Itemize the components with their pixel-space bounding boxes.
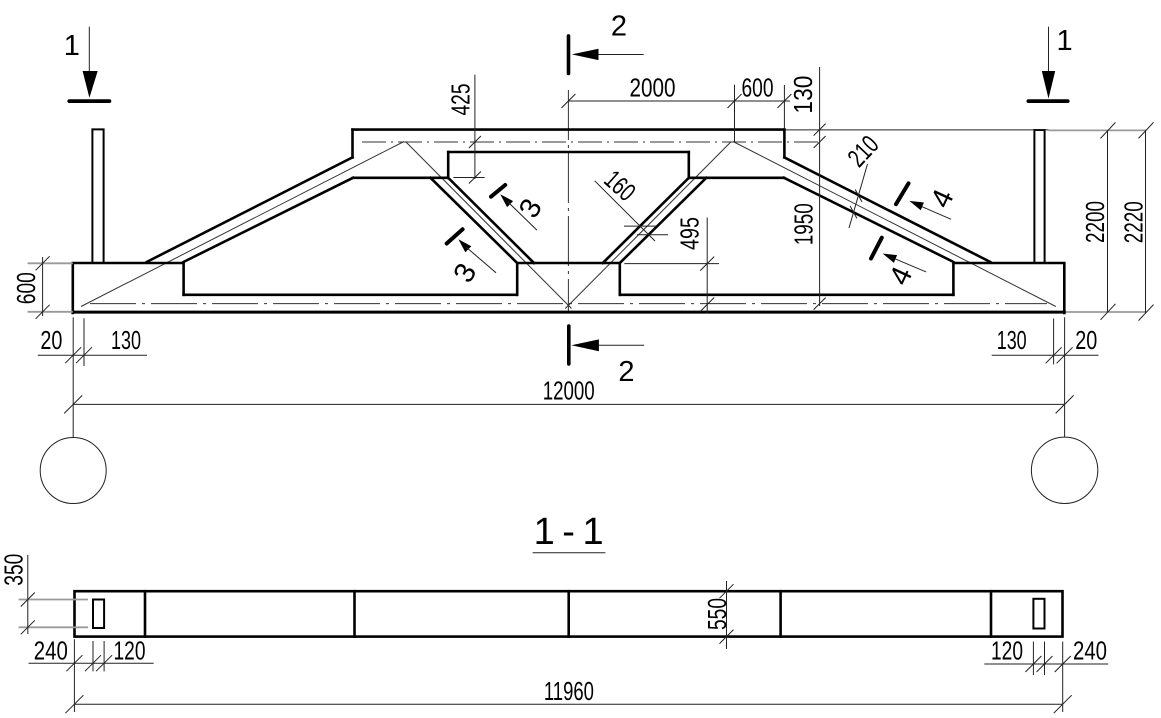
svg-text:130: 130 bbox=[111, 325, 141, 355]
svg-text:600: 600 bbox=[11, 272, 41, 304]
svg-text:12000: 12000 bbox=[543, 376, 595, 406]
svg-text:1950: 1950 bbox=[789, 203, 819, 245]
svg-text:495: 495 bbox=[674, 217, 704, 250]
svg-text:3: 3 bbox=[448, 258, 484, 288]
svg-text:210: 210 bbox=[841, 129, 884, 172]
svg-text:1: 1 bbox=[64, 30, 80, 62]
svg-text:240: 240 bbox=[34, 636, 68, 666]
svg-text:1 - 1: 1 - 1 bbox=[534, 511, 604, 553]
svg-text:20: 20 bbox=[1075, 325, 1097, 355]
svg-text:2220: 2220 bbox=[1119, 201, 1149, 243]
svg-text:160: 160 bbox=[598, 164, 641, 207]
svg-text:130: 130 bbox=[997, 325, 1027, 355]
svg-text:4: 4 bbox=[925, 185, 961, 213]
svg-text:120: 120 bbox=[991, 636, 1023, 666]
svg-text:550: 550 bbox=[702, 598, 732, 630]
svg-text:240: 240 bbox=[1073, 636, 1107, 666]
svg-text:120: 120 bbox=[114, 636, 146, 666]
svg-text:20: 20 bbox=[40, 325, 62, 355]
svg-text:600: 600 bbox=[742, 73, 774, 103]
svg-text:2: 2 bbox=[611, 11, 627, 43]
svg-text:2200: 2200 bbox=[1080, 201, 1110, 243]
svg-text:3: 3 bbox=[513, 194, 549, 224]
svg-text:2: 2 bbox=[618, 356, 634, 388]
svg-text:2000: 2000 bbox=[630, 73, 676, 103]
svg-text:1: 1 bbox=[1057, 25, 1073, 57]
svg-text:11960: 11960 bbox=[544, 676, 594, 706]
svg-text:425: 425 bbox=[446, 84, 476, 116]
svg-text:130: 130 bbox=[788, 76, 818, 114]
svg-text:350: 350 bbox=[0, 554, 29, 586]
